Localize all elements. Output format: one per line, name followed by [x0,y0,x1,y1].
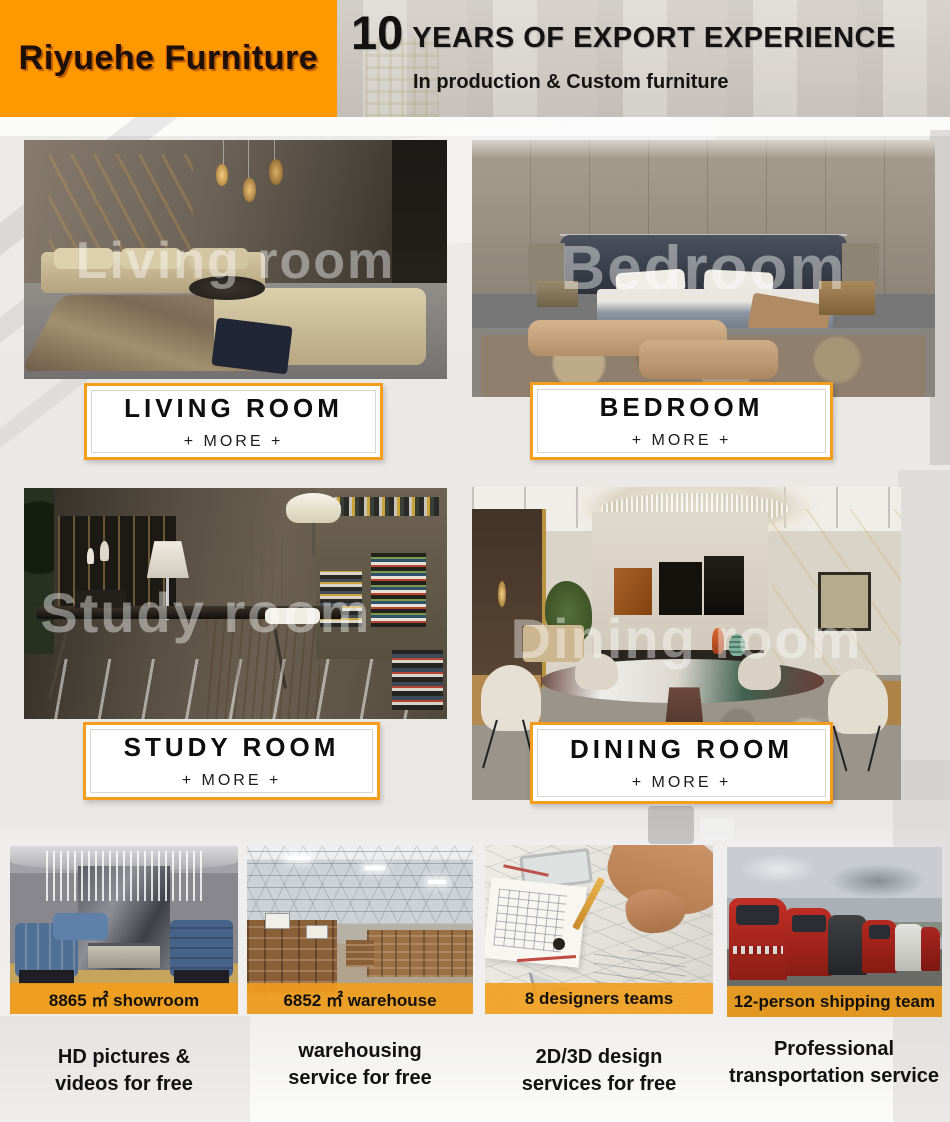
study-room-watermark: Study room [24,580,447,645]
shipping-team-photo[interactable]: 12-person shipping team [727,847,942,1017]
warehouse-description: warehousing service for free [250,1038,470,1092]
showroom-photo[interactable]: 8865 ㎡ showroom [10,846,238,1014]
brand-logo-block: Riyuehe Furniture [0,0,337,117]
more-button[interactable]: + MORE + [184,433,284,451]
category-title: STUDY ROOM [124,732,340,763]
bedroom-watermark: Bedroom [472,233,935,304]
warehouse-photo[interactable]: 6852 ㎡ warehouse [247,846,473,1014]
header-subtitle: In production & Custom furniture [413,71,729,94]
desc-line: HD pictures & [14,1044,234,1071]
header-banner: 10 YEARS OF EXPORT EXPERIENCE In product… [337,0,950,117]
design-team-badge: 8 designers teams [485,983,713,1014]
shipping-team-description: Professional transportation service [714,1036,950,1090]
more-button[interactable]: + MORE + [632,774,732,792]
years-number: 10 [351,11,403,55]
study-room-photo[interactable]: Study room [24,488,447,719]
dining-room-label[interactable]: DINING ROOM + MORE + [530,722,833,804]
shipping-team-badge: 12-person shipping team [727,986,942,1017]
desc-line: service for free [250,1065,470,1092]
category-title: LIVING ROOM [124,393,343,424]
desc-line: videos for free [14,1071,234,1098]
more-button[interactable]: + MORE + [632,432,732,450]
promo-page: Riyuehe Furniture 10 YEARS OF EXPORT EXP… [0,0,950,1122]
years-title: YEARS OF EXPORT EXPERIENCE [412,22,896,54]
showroom-badge: 8865 ㎡ showroom [10,983,238,1014]
brand-name: Riyuehe Furniture [19,39,318,78]
study-room-label[interactable]: STUDY ROOM + MORE + [83,722,380,800]
living-room-photo[interactable]: Living room [24,140,447,379]
category-title: DINING ROOM [570,734,793,765]
living-room-watermark: Living room [24,231,447,291]
bedroom-photo[interactable]: Bedroom [472,140,935,397]
warehouse-badge: 6852 ㎡ warehouse [247,983,473,1014]
desc-line: Professional [714,1036,950,1063]
design-team-photo[interactable]: 8 designers teams [485,845,713,1014]
category-title: BEDROOM [600,392,764,423]
dining-room-watermark: Dining room [472,606,901,671]
living-room-label[interactable]: LIVING ROOM + MORE + [84,383,383,460]
desc-line: services for free [489,1071,709,1098]
desc-line: warehousing [250,1038,470,1065]
desc-line: transportation service [714,1063,950,1090]
header-headline: 10 YEARS OF EXPORT EXPERIENCE [351,11,896,55]
more-button[interactable]: + MORE + [182,772,282,790]
showroom-description: HD pictures & videos for free [14,1044,234,1098]
design-team-description: 2D/3D design services for free [489,1044,709,1098]
desc-line: 2D/3D design [489,1044,709,1071]
bedroom-label[interactable]: BEDROOM + MORE + [530,382,833,460]
